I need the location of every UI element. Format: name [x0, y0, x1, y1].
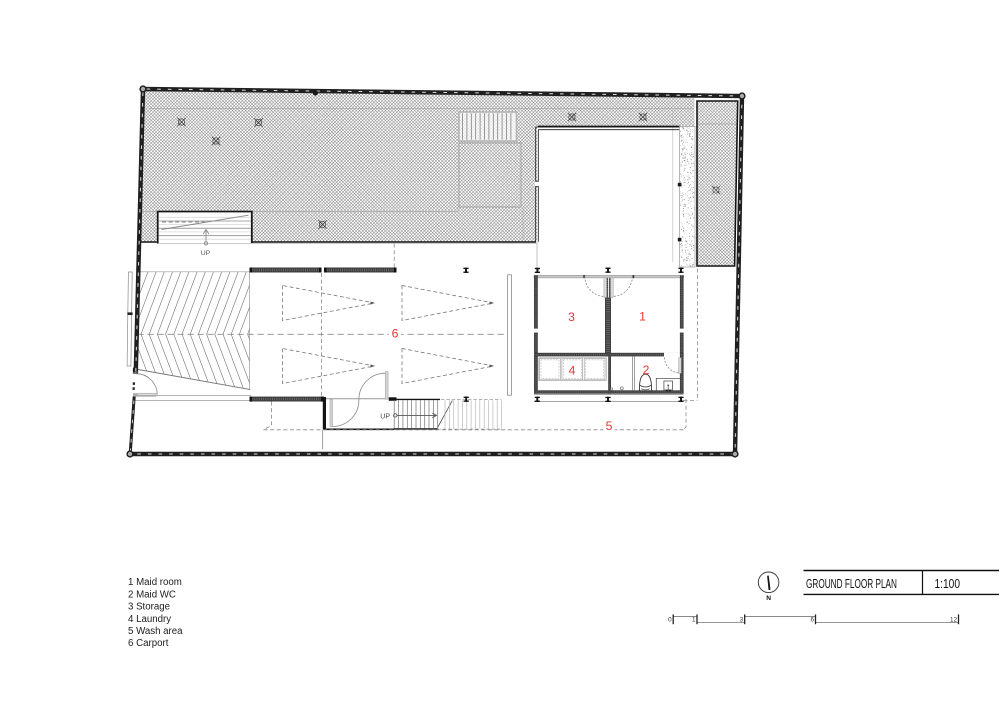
svg-text:2 Maid WC: 2 Maid WC: [128, 589, 176, 600]
svg-text:12: 12: [950, 617, 958, 624]
svg-text:0: 0: [668, 617, 672, 624]
svg-text:4: 4: [569, 364, 576, 378]
svg-text:5: 5: [606, 419, 613, 433]
svg-text:6: 6: [810, 617, 814, 624]
svg-text:1:100: 1:100: [935, 577, 961, 591]
svg-text:6 Carport: 6 Carport: [128, 638, 169, 649]
svg-text:1: 1: [692, 617, 696, 624]
svg-text:2: 2: [643, 363, 650, 377]
svg-text:N: N: [766, 595, 771, 602]
svg-text:GROUND FLOOR PLAN: GROUND FLOOR PLAN: [806, 577, 897, 591]
svg-text:4 Laundry: 4 Laundry: [128, 614, 171, 625]
svg-text:5 Wash area: 5 Wash area: [128, 626, 183, 637]
svg-text:3: 3: [740, 617, 744, 624]
svg-text:3 Storage: 3 Storage: [128, 602, 170, 613]
svg-text:1: 1: [639, 310, 646, 324]
svg-text:6: 6: [392, 327, 399, 341]
svg-text:3: 3: [568, 310, 575, 324]
svg-text:1 Maid room: 1 Maid room: [128, 577, 182, 588]
svg-text:UP: UP: [380, 413, 390, 420]
svg-text:UP: UP: [201, 250, 211, 257]
